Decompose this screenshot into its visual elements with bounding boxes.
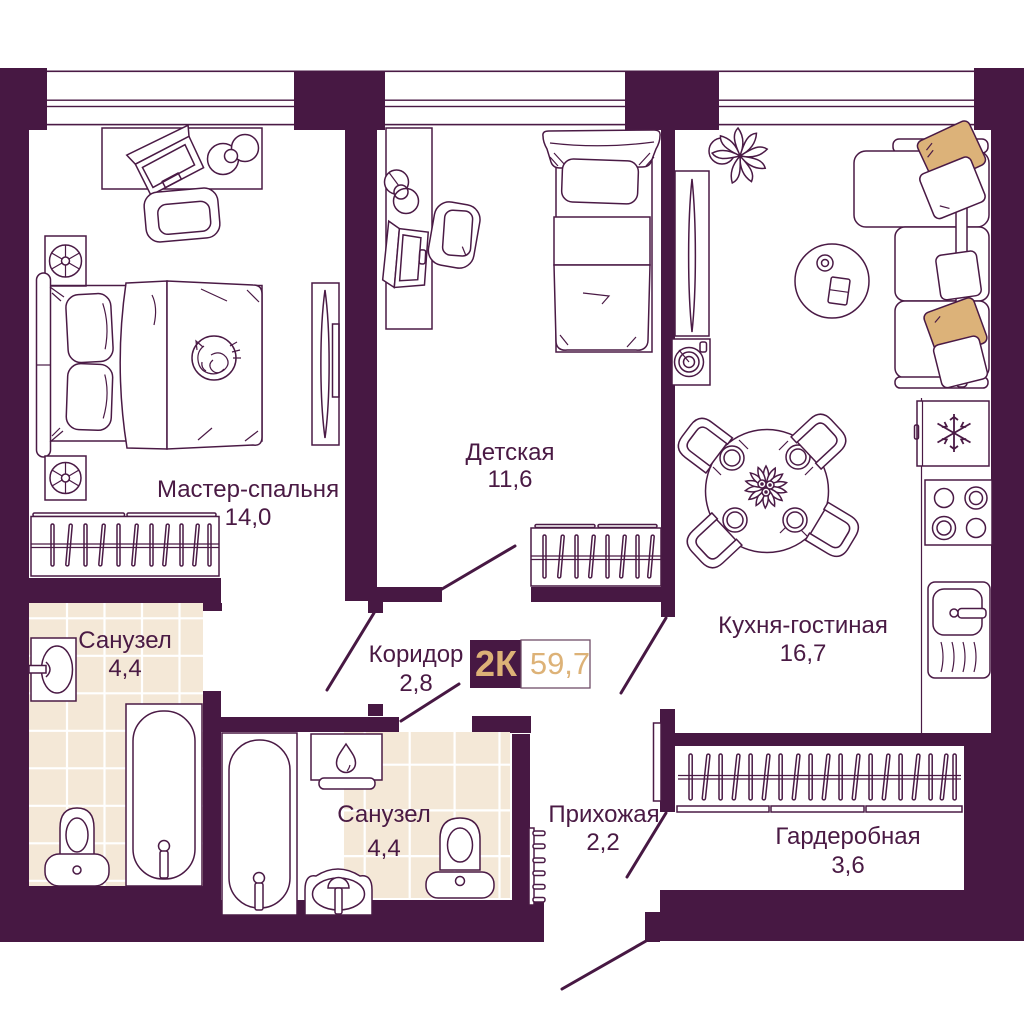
svg-text:2,8: 2,8 <box>399 670 432 697</box>
svg-text:59,7: 59,7 <box>530 646 590 681</box>
svg-text:3,6: 3,6 <box>831 852 864 879</box>
svg-text:Санузел: Санузел <box>337 801 431 828</box>
svg-text:Прихожая: Прихожая <box>548 801 659 828</box>
svg-text:Мастер-спальня: Мастер-спальня <box>157 476 339 503</box>
svg-text:2К: 2К <box>475 643 518 684</box>
svg-text:4,4: 4,4 <box>108 655 141 682</box>
svg-text:Гардеробная: Гардеробная <box>775 823 920 850</box>
svg-text:16,7: 16,7 <box>780 640 827 667</box>
svg-text:Детская: Детская <box>466 439 555 466</box>
svg-text:11,6: 11,6 <box>488 466 533 493</box>
svg-text:14,0: 14,0 <box>225 504 272 531</box>
svg-text:Кухня-гостиная: Кухня-гостиная <box>718 612 888 639</box>
svg-text:Санузел: Санузел <box>78 627 172 654</box>
svg-text:4,4: 4,4 <box>367 835 400 862</box>
svg-text:2,2: 2,2 <box>586 829 619 856</box>
svg-text:Коридор: Коридор <box>369 641 464 668</box>
